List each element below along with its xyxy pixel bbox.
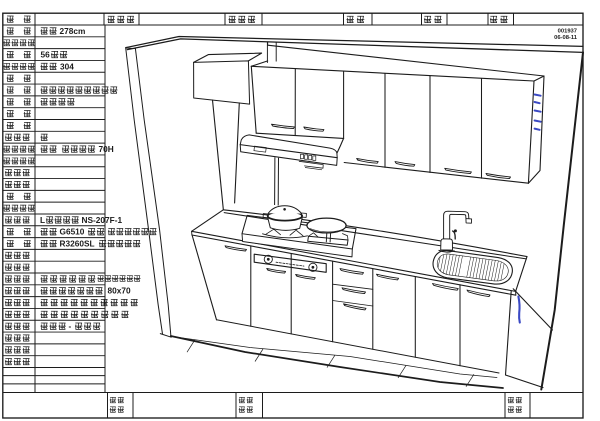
svg-text:-: - <box>69 321 72 331</box>
svg-text:304: 304 <box>60 61 74 71</box>
svg-text:06-08-11: 06-08-11 <box>554 35 578 41</box>
svg-text:56: 56 <box>41 50 51 60</box>
svg-text:G6510: G6510 <box>60 227 85 237</box>
svg-text:70H: 70H <box>99 144 114 154</box>
svg-text:80x70: 80x70 <box>108 286 131 296</box>
svg-text:NS-207F-1: NS-207F-1 <box>82 215 123 225</box>
svg-text:278cm: 278cm <box>60 26 86 36</box>
svg-text:L: L <box>40 215 45 225</box>
svg-text:001937: 001937 <box>558 28 577 34</box>
svg-text:R3260SL: R3260SL <box>60 238 95 248</box>
